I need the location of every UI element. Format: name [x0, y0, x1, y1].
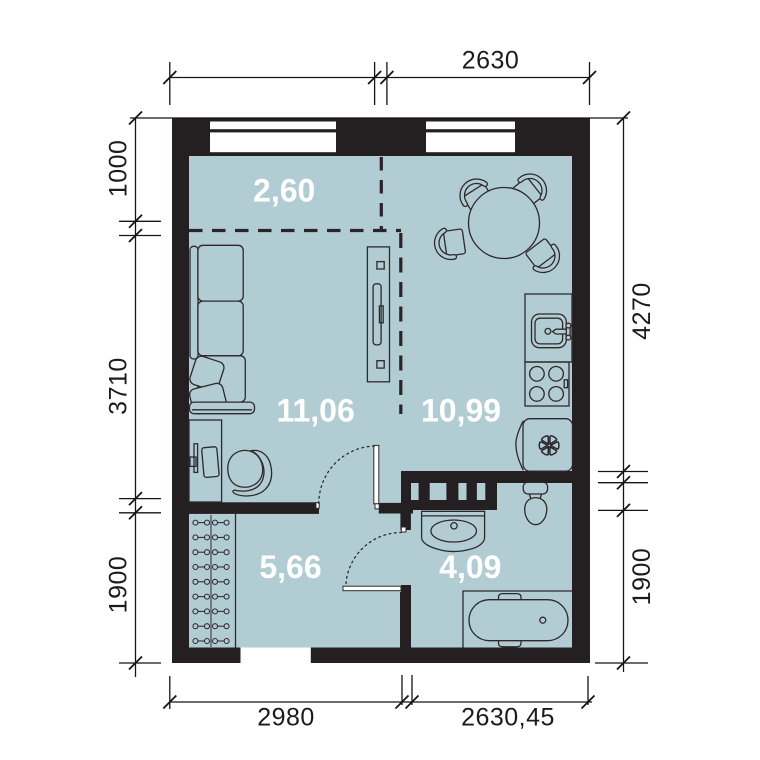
- svg-text:2630,45: 2630,45: [461, 704, 555, 732]
- svg-text:1900: 1900: [105, 556, 133, 614]
- svg-text:4,09: 4,09: [439, 549, 501, 585]
- svg-text:1900: 1900: [628, 548, 656, 606]
- svg-text:4270: 4270: [628, 282, 656, 340]
- svg-text:5,66: 5,66: [259, 549, 321, 585]
- svg-text:1000: 1000: [105, 140, 133, 198]
- svg-text:11,06: 11,06: [276, 393, 354, 429]
- svg-text:2,60: 2,60: [253, 173, 315, 209]
- svg-text:2980: 2980: [257, 704, 315, 732]
- svg-text:3710: 3710: [105, 357, 133, 415]
- svg-text:2630: 2630: [462, 47, 520, 75]
- svg-text:10,99: 10,99: [421, 393, 501, 429]
